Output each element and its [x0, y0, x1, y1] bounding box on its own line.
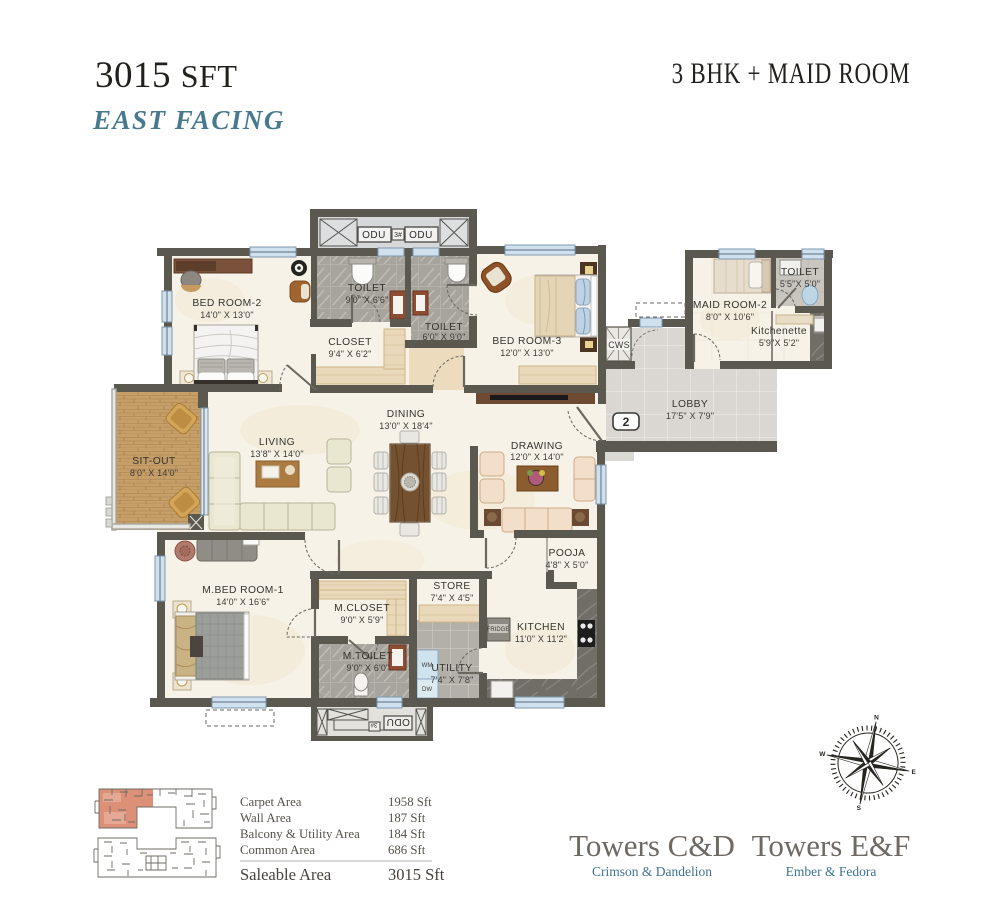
svg-text:3#: 3#: [394, 232, 402, 239]
svg-text:5'9"X 5'2": 5'9"X 5'2": [759, 338, 799, 348]
svg-text:TOILET: TOILET: [781, 267, 820, 278]
svg-text:13'8" X 14'0": 13'8" X 14'0": [250, 449, 303, 459]
svg-text:CLOSET: CLOSET: [328, 337, 372, 348]
svg-text:EAST FACING: EAST FACING: [92, 105, 285, 135]
svg-text:S: S: [857, 805, 862, 812]
svg-text:3 BHK + MAID ROOM: 3 BHK + MAID ROOM: [672, 56, 911, 89]
svg-text:14'0" X 13'0": 14'0" X 13'0": [200, 310, 253, 320]
svg-text:KITCHEN: KITCHEN: [517, 622, 565, 633]
svg-text:ODU: ODU: [409, 230, 433, 241]
svg-text:CWS: CWS: [608, 340, 630, 350]
svg-text:14'0" X 16'6": 14'0" X 16'6": [216, 597, 269, 607]
svg-text:6'0" X 9'0": 6'0" X 9'0": [422, 332, 465, 342]
svg-text:11'0" X 11'2": 11'0" X 11'2": [515, 634, 567, 644]
svg-text:LOBBY: LOBBY: [672, 399, 708, 410]
svg-text:DW: DW: [422, 687, 432, 693]
svg-text:9'0" X 6'6": 9'0" X 6'6": [345, 295, 388, 305]
svg-text:M.CLOSET: M.CLOSET: [334, 603, 390, 614]
svg-text:MAID ROOM-2: MAID ROOM-2: [693, 300, 767, 311]
svg-text:Crimson & Dandelion: Crimson & Dandelion: [592, 864, 712, 879]
svg-text:Saleable Area: Saleable Area: [240, 865, 332, 884]
svg-text:SIT-OUT: SIT-OUT: [132, 456, 176, 467]
svg-text:13'0" X 18'4": 13'0" X 18'4": [379, 421, 432, 431]
svg-text:Balcony & Utility Area: Balcony & Utility Area: [240, 827, 360, 841]
svg-text:E: E: [911, 769, 916, 776]
svg-text:5'5"X 5'0": 5'5"X 5'0": [780, 279, 820, 289]
svg-text:Wall Area: Wall Area: [240, 811, 292, 825]
svg-text:12'0" X 13'0": 12'0" X 13'0": [500, 348, 553, 358]
svg-text:W: W: [819, 751, 826, 758]
svg-text:4'8" X 5'0": 4'8" X 5'0": [545, 560, 588, 570]
svg-text:7'4" X 4'5": 7'4" X 4'5": [430, 593, 473, 603]
svg-text:BED ROOM-2: BED ROOM-2: [192, 298, 261, 309]
svg-text:3015 SFT: 3015 SFT: [95, 55, 237, 96]
svg-text:686 Sft: 686 Sft: [388, 843, 426, 857]
svg-text:8'0" X 10'6": 8'0" X 10'6": [706, 312, 754, 322]
svg-text:M.BED ROOM-1: M.BED ROOM-1: [202, 585, 283, 596]
svg-text:POOJA: POOJA: [549, 548, 586, 559]
svg-text:8'0" X 14'0": 8'0" X 14'0": [130, 468, 178, 478]
svg-text:187 Sft: 187 Sft: [388, 811, 426, 825]
svg-text:Kitchenette: Kitchenette: [751, 326, 807, 337]
svg-text:WM: WM: [422, 663, 433, 669]
svg-text:BED ROOM-3: BED ROOM-3: [492, 336, 561, 347]
svg-text:1958 Sft: 1958 Sft: [388, 795, 432, 809]
svg-text:M.TOILET: M.TOILET: [343, 651, 394, 662]
svg-text:Carpet Area: Carpet Area: [240, 795, 302, 809]
svg-text:UTILITY: UTILITY: [431, 663, 472, 674]
svg-text:3015 Sft: 3015 Sft: [388, 865, 445, 884]
svg-text:3#: 3#: [370, 721, 377, 727]
svg-text:17'5" X 7'9": 17'5" X 7'9": [666, 411, 714, 421]
svg-text:N: N: [874, 714, 879, 721]
svg-text:ODU: ODU: [362, 230, 386, 241]
svg-text:Towers C&D: Towers C&D: [569, 828, 735, 863]
svg-text:DINING: DINING: [387, 409, 425, 420]
svg-text:ODU: ODU: [386, 716, 410, 727]
svg-text:Towers E&F: Towers E&F: [752, 828, 911, 863]
svg-text:7'4" X 7'8": 7'4" X 7'8": [430, 675, 473, 685]
svg-text:2: 2: [623, 415, 630, 429]
svg-text:TOILET: TOILET: [348, 283, 387, 294]
svg-text:FRIDGE: FRIDGE: [487, 627, 510, 633]
svg-text:9'4" X 6'2": 9'4" X 6'2": [328, 349, 371, 359]
svg-text:184 Sft: 184 Sft: [388, 827, 426, 841]
svg-text:12'0" X 14'0": 12'0" X 14'0": [510, 452, 563, 462]
svg-text:Ember & Fedora: Ember & Fedora: [786, 864, 877, 879]
svg-text:STORE: STORE: [433, 581, 470, 592]
svg-text:9'0" X 6'0": 9'0" X 6'0": [346, 663, 389, 673]
svg-text:Common Area: Common Area: [240, 843, 315, 857]
svg-text:LIVING: LIVING: [259, 437, 295, 448]
svg-text:DRAWING: DRAWING: [511, 441, 563, 452]
svg-text:9'0" X 5'9": 9'0" X 5'9": [340, 615, 383, 625]
